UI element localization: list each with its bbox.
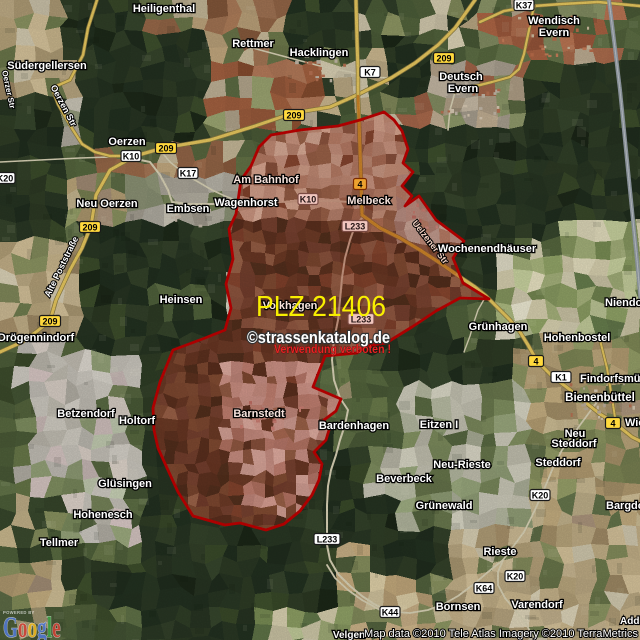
svg-text:Wagenhorst: Wagenhorst	[214, 197, 277, 209]
svg-text:4: 4	[357, 180, 362, 190]
svg-text:Wendisch: Wendisch	[528, 15, 580, 27]
svg-text:209: 209	[436, 54, 451, 64]
svg-text:Bardenhagen: Bardenhagen	[319, 420, 390, 432]
svg-text:Varendorf: Varendorf	[511, 599, 563, 611]
svg-text:Hacklingen: Hacklingen	[290, 47, 349, 59]
svg-text:Wochenendhäuser: Wochenendhäuser	[438, 243, 537, 255]
svg-text:K10: K10	[123, 152, 140, 162]
svg-text:Melbeck: Melbeck	[347, 195, 391, 207]
svg-text:K20: K20	[507, 572, 524, 582]
svg-text:Heinsen: Heinsen	[160, 294, 203, 306]
svg-text:Grünhagen: Grünhagen	[469, 321, 528, 333]
svg-text:Neu Oerzen: Neu Oerzen	[76, 198, 137, 210]
svg-text:K64: K64	[476, 584, 493, 594]
svg-text:Bargdorf: Bargdorf	[606, 500, 640, 512]
svg-text:Wiedorf: Wiedorf	[625, 417, 640, 429]
svg-text:Google: Google	[3, 612, 61, 640]
svg-text:Verwendung verboten !: Verwendung verboten !	[274, 342, 391, 356]
svg-text:K1: K1	[555, 373, 567, 383]
svg-text:Evern: Evern	[539, 27, 570, 39]
svg-text:4: 4	[610, 419, 615, 429]
svg-text:209: 209	[42, 317, 57, 327]
svg-text:K37: K37	[516, 1, 533, 11]
svg-text:Add: Add	[620, 616, 639, 627]
svg-text:Neu-Rieste: Neu-Rieste	[433, 459, 490, 471]
svg-text:K10: K10	[300, 195, 317, 205]
svg-text:Niendorf: Niendorf	[605, 297, 640, 309]
svg-text:Südergellersen: Südergellersen	[7, 60, 87, 72]
svg-text:209: 209	[286, 111, 301, 121]
svg-text:Findorfsmühlen: Findorfsmühlen	[580, 373, 640, 385]
svg-text:Am Bahnhof: Am Bahnhof	[233, 174, 299, 186]
svg-text:Velgen: Velgen	[333, 630, 365, 640]
svg-text:Beverbeck: Beverbeck	[376, 473, 433, 485]
svg-text:Rieste: Rieste	[483, 546, 516, 558]
svg-text:Rettmer: Rettmer	[232, 38, 274, 50]
svg-text:Deutsch: Deutsch	[439, 71, 483, 83]
svg-text:K44: K44	[382, 608, 399, 618]
svg-text:Heiligenthal: Heiligenthal	[133, 3, 195, 15]
svg-text:Grünewald: Grünewald	[416, 500, 473, 512]
svg-text:Hohenesch: Hohenesch	[73, 509, 133, 521]
svg-text:Bornsen: Bornsen	[436, 601, 481, 613]
svg-text:Glüsingen: Glüsingen	[98, 478, 152, 490]
svg-text:Holtorf: Holtorf	[119, 415, 155, 427]
svg-text:K7: K7	[364, 68, 376, 78]
svg-text:Bienenbüttel: Bienenbüttel	[565, 392, 635, 404]
svg-text:Betzendorf: Betzendorf	[57, 408, 115, 420]
svg-text:Oerzen: Oerzen	[108, 136, 146, 148]
svg-text:Drögennindorf: Drögennindorf	[0, 332, 75, 344]
svg-text:4: 4	[533, 357, 538, 367]
svg-text:209: 209	[82, 223, 97, 233]
svg-text:Tellmer: Tellmer	[40, 537, 79, 549]
svg-text:K20: K20	[0, 174, 13, 184]
svg-text:Steddorf: Steddorf	[535, 457, 581, 469]
svg-text:K20: K20	[532, 491, 549, 501]
svg-text:Embsen: Embsen	[167, 203, 210, 215]
svg-text:Steddorf: Steddorf	[551, 438, 597, 450]
svg-text:Evern: Evern	[448, 83, 479, 95]
svg-text:Eitzen I: Eitzen I	[420, 419, 459, 431]
svg-text:Barnstedt: Barnstedt	[233, 408, 285, 420]
svg-text:L233: L233	[345, 222, 366, 232]
svg-text:209: 209	[158, 144, 173, 154]
svg-text:K17: K17	[180, 169, 197, 179]
svg-text:L233: L233	[317, 535, 338, 545]
svg-text:Map data ©2010 Tele Atlas Ima: Map data ©2010 Tele Atlas Imagery ©2010 …	[364, 628, 638, 640]
svg-text:PLZ 21406: PLZ 21406	[256, 291, 386, 323]
svg-text:Hohenbostel: Hohenbostel	[544, 332, 611, 344]
